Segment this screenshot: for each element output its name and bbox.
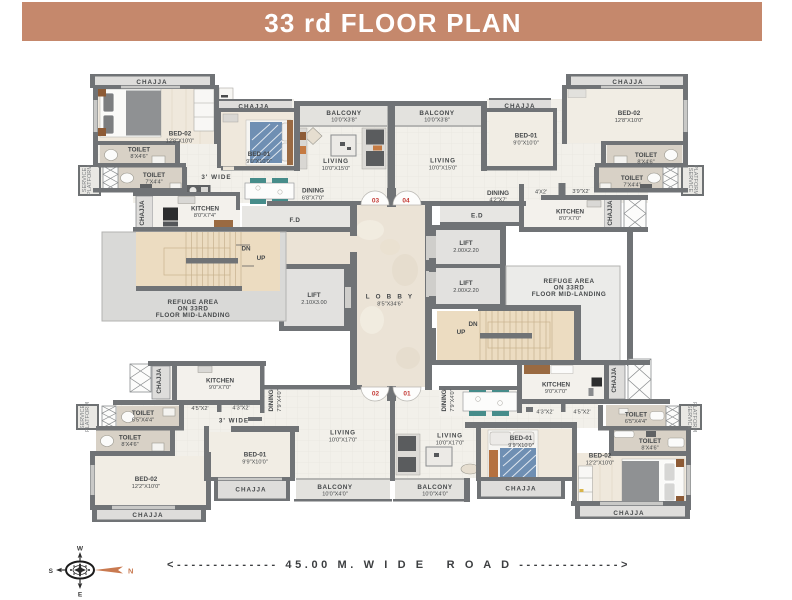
svg-text:E: E	[78, 592, 83, 599]
svg-text:TOILET: TOILET	[119, 435, 141, 442]
svg-text:LIFT: LIFT	[307, 292, 320, 299]
svg-text:CHAJJA: CHAJJA	[139, 200, 146, 226]
svg-text:8'5"X34'6": 8'5"X34'6"	[377, 302, 402, 308]
svg-text:KITCHEN: KITCHEN	[206, 378, 234, 385]
svg-text:BALCONY: BALCONY	[326, 110, 362, 117]
svg-text:DINING: DINING	[441, 389, 448, 411]
svg-text:CHAJJA: CHAJJA	[613, 510, 644, 517]
svg-text:DINING: DINING	[268, 389, 275, 411]
svg-text:4'X2': 4'X2'	[535, 190, 547, 196]
svg-text:PLATFORM: PLATFORM	[691, 402, 697, 432]
svg-text:PLATFORM: PLATFORM	[87, 165, 93, 195]
svg-text:TOILET: TOILET	[625, 412, 647, 419]
svg-text:E.D: E.D	[471, 213, 483, 220]
svg-text:9'9"X10'0": 9'9"X10'0"	[508, 443, 533, 449]
svg-text:BED-01: BED-01	[510, 435, 533, 442]
svg-text:7'X4'4": 7'X4'4"	[623, 183, 640, 189]
svg-text:9'9"X10'0": 9'9"X10'0"	[242, 460, 267, 466]
svg-text:7'9"X4'0": 7'9"X4'0"	[450, 389, 456, 411]
svg-text:3'9"X2': 3'9"X2'	[572, 189, 589, 195]
svg-text:CHAJJA: CHAJJA	[505, 486, 536, 493]
svg-text:DINING: DINING	[487, 190, 509, 197]
svg-text:8'X4'6": 8'X4'6"	[637, 160, 654, 166]
svg-text:10'0"X15'0": 10'0"X15'0"	[429, 166, 458, 172]
svg-text:S: S	[49, 568, 54, 575]
svg-text:6'5"X4'4": 6'5"X4'4"	[132, 418, 154, 424]
svg-text:LIVING: LIVING	[330, 430, 356, 437]
svg-text:10'0"X17'0": 10'0"X17'0"	[436, 441, 465, 447]
svg-text:4'5"X2': 4'5"X2'	[573, 410, 590, 416]
svg-text:12'2"X10'0": 12'2"X10'0"	[132, 484, 161, 490]
svg-text:03: 03	[372, 198, 380, 205]
svg-text:04: 04	[402, 198, 410, 205]
svg-text:FLOOR MID-LANDING: FLOOR MID-LANDING	[156, 312, 231, 319]
svg-text:BED-01: BED-01	[248, 151, 271, 158]
svg-text:KITCHEN: KITCHEN	[542, 382, 570, 389]
svg-text:TOILET: TOILET	[132, 410, 154, 417]
svg-text:12'2"X10'0": 12'2"X10'0"	[586, 461, 615, 467]
svg-text:DN: DN	[468, 321, 478, 328]
svg-text:10'0"X4'0": 10'0"X4'0"	[422, 492, 447, 498]
svg-text:L O B B Y: L O B B Y	[366, 294, 415, 301]
svg-text:FLOOR MID-LANDING: FLOOR MID-LANDING	[532, 291, 607, 298]
svg-text:02: 02	[372, 391, 380, 398]
svg-text:LIFT: LIFT	[459, 240, 472, 247]
svg-text:LIVING: LIVING	[430, 158, 456, 165]
svg-text:BED-01: BED-01	[244, 452, 267, 459]
svg-text:12'8"X10'0": 12'8"X10'0"	[615, 118, 644, 124]
svg-text:KITCHEN: KITCHEN	[556, 209, 584, 216]
svg-text:PLATFORM: PLATFORM	[692, 165, 698, 195]
svg-text:8'X4'6": 8'X4'6"	[130, 154, 147, 160]
svg-text:W: W	[77, 546, 84, 553]
svg-text:F.D: F.D	[290, 217, 301, 224]
svg-text:TOILET: TOILET	[143, 172, 165, 179]
svg-text:9'0"X7'0": 9'0"X7'0"	[209, 385, 231, 391]
svg-text:7'X4'4": 7'X4'4"	[145, 180, 162, 186]
svg-text:CHAJJA: CHAJJA	[156, 368, 163, 394]
svg-text:2.10X3.00: 2.10X3.00	[301, 300, 327, 306]
svg-text:TOILET: TOILET	[128, 147, 150, 154]
svg-text:10'0"X3'8": 10'0"X3'8"	[331, 118, 356, 124]
svg-text:TOILET: TOILET	[621, 175, 643, 182]
svg-text:8'X4'6": 8'X4'6"	[641, 446, 658, 452]
svg-text:3' WIDE: 3' WIDE	[201, 174, 231, 181]
svg-text:CHAJJA: CHAJJA	[612, 79, 643, 86]
svg-text:DN: DN	[241, 246, 251, 253]
svg-text:10'0"X15'0": 10'0"X15'0"	[322, 166, 351, 172]
svg-text:8'0"X7'4": 8'0"X7'4"	[194, 213, 216, 219]
svg-text:UP: UP	[257, 255, 266, 262]
svg-text:DINING: DINING	[302, 188, 324, 195]
svg-text:8'X4'6": 8'X4'6"	[121, 442, 138, 448]
svg-text:LIVING: LIVING	[437, 433, 463, 440]
svg-text:LIFT: LIFT	[459, 280, 472, 287]
svg-text:LIVING: LIVING	[323, 158, 349, 165]
svg-text:2.00X2.20: 2.00X2.20	[453, 288, 479, 294]
svg-text:4'2"X7': 4'2"X7'	[489, 198, 506, 204]
svg-text:CHAJJA: CHAJJA	[607, 200, 614, 226]
svg-text:<-------------- 45.00 M. W I D: <-------------- 45.00 M. W I D E R O A D…	[167, 559, 631, 571]
svg-text:4'5"X2': 4'5"X2'	[191, 406, 208, 412]
svg-text:10'0"X4'0": 10'0"X4'0"	[322, 492, 347, 498]
svg-text:TOILET: TOILET	[635, 152, 657, 159]
svg-text:BED-02: BED-02	[135, 476, 158, 483]
svg-text:3' WIDE: 3' WIDE	[219, 418, 249, 425]
svg-text:6'5"X4'4": 6'5"X4'4"	[625, 419, 647, 425]
svg-text:BALCONY: BALCONY	[417, 484, 453, 491]
svg-text:BED-01: BED-01	[515, 133, 538, 140]
svg-text:PLATFORM: PLATFORM	[85, 402, 91, 432]
svg-text:8'0"X7'0": 8'0"X7'0"	[559, 216, 581, 222]
svg-text:01: 01	[403, 391, 411, 398]
svg-text:BALCONY: BALCONY	[317, 484, 353, 491]
svg-text:10'0"X3'8": 10'0"X3'8"	[424, 118, 449, 124]
svg-text:4'3"X2': 4'3"X2'	[536, 410, 553, 416]
svg-text:CHAJJA: CHAJJA	[235, 487, 266, 494]
svg-text:4'3"X2': 4'3"X2'	[232, 406, 249, 412]
svg-text:BED-02: BED-02	[618, 110, 641, 117]
svg-text:10'0"X17'0": 10'0"X17'0"	[329, 438, 358, 444]
svg-text:9'0"X10'0": 9'0"X10'0"	[246, 159, 271, 165]
svg-text:BED-02: BED-02	[589, 453, 612, 460]
svg-text:12'8"X10'0": 12'8"X10'0"	[166, 139, 195, 145]
svg-text:CHAJJA: CHAJJA	[611, 367, 618, 393]
svg-text:BED-02: BED-02	[169, 131, 192, 138]
svg-text:6'8"X7'0": 6'8"X7'0"	[302, 196, 324, 202]
svg-text:BALCONY: BALCONY	[419, 110, 455, 117]
svg-text:9'0"X10'0": 9'0"X10'0"	[513, 141, 538, 147]
svg-text:2.00X2.20: 2.00X2.20	[453, 248, 479, 254]
svg-text:N: N	[128, 567, 133, 576]
svg-text:KITCHEN: KITCHEN	[191, 206, 219, 213]
svg-text:CHAJJA: CHAJJA	[136, 79, 167, 86]
svg-text:CHAJJA: CHAJJA	[132, 512, 163, 519]
svg-text:33 rd FLOOR PLAN: 33 rd FLOOR PLAN	[264, 8, 522, 38]
svg-text:TOILET: TOILET	[639, 438, 661, 445]
svg-text:9'0"X7'0": 9'0"X7'0"	[545, 389, 567, 395]
svg-text:UP: UP	[457, 329, 466, 336]
svg-text:7'9"X4'0": 7'9"X4'0"	[277, 389, 283, 411]
